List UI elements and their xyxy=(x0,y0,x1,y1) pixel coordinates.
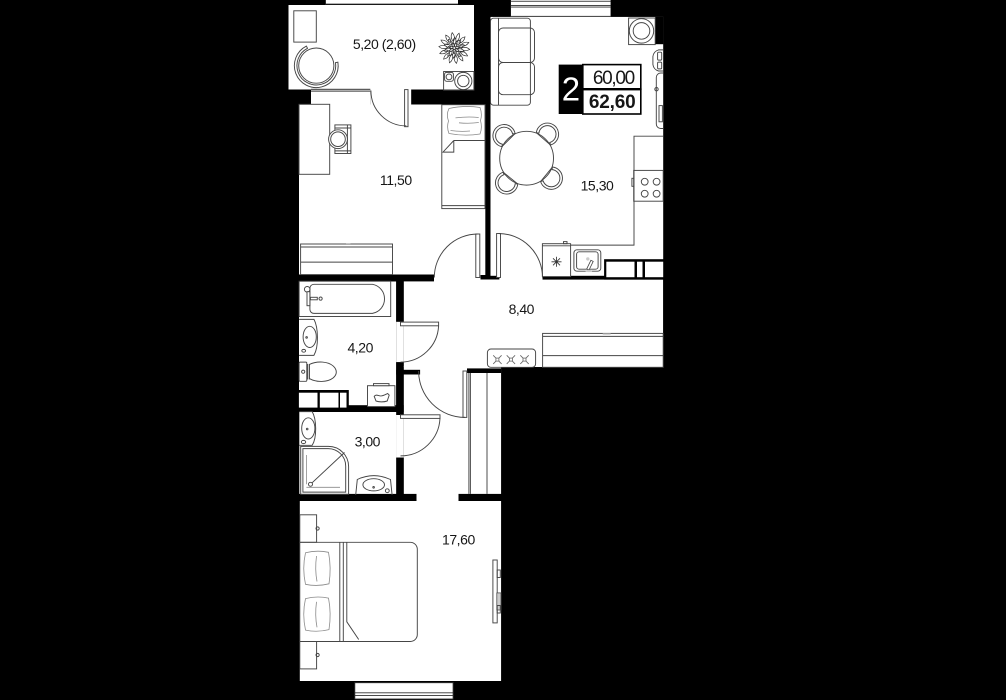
svg-text:62,60: 62,60 xyxy=(589,92,636,113)
svg-text:8,40: 8,40 xyxy=(509,301,535,317)
svg-text:17,60: 17,60 xyxy=(442,531,475,547)
svg-text:3,00: 3,00 xyxy=(355,434,381,450)
svg-text:15,30: 15,30 xyxy=(581,178,614,194)
svg-text:5,20 (2,60): 5,20 (2,60) xyxy=(353,36,416,52)
svg-text:11,50: 11,50 xyxy=(380,172,412,188)
svg-text:4,20: 4,20 xyxy=(347,340,373,356)
svg-text:60,00: 60,00 xyxy=(593,68,635,89)
svg-text:2: 2 xyxy=(562,70,580,107)
